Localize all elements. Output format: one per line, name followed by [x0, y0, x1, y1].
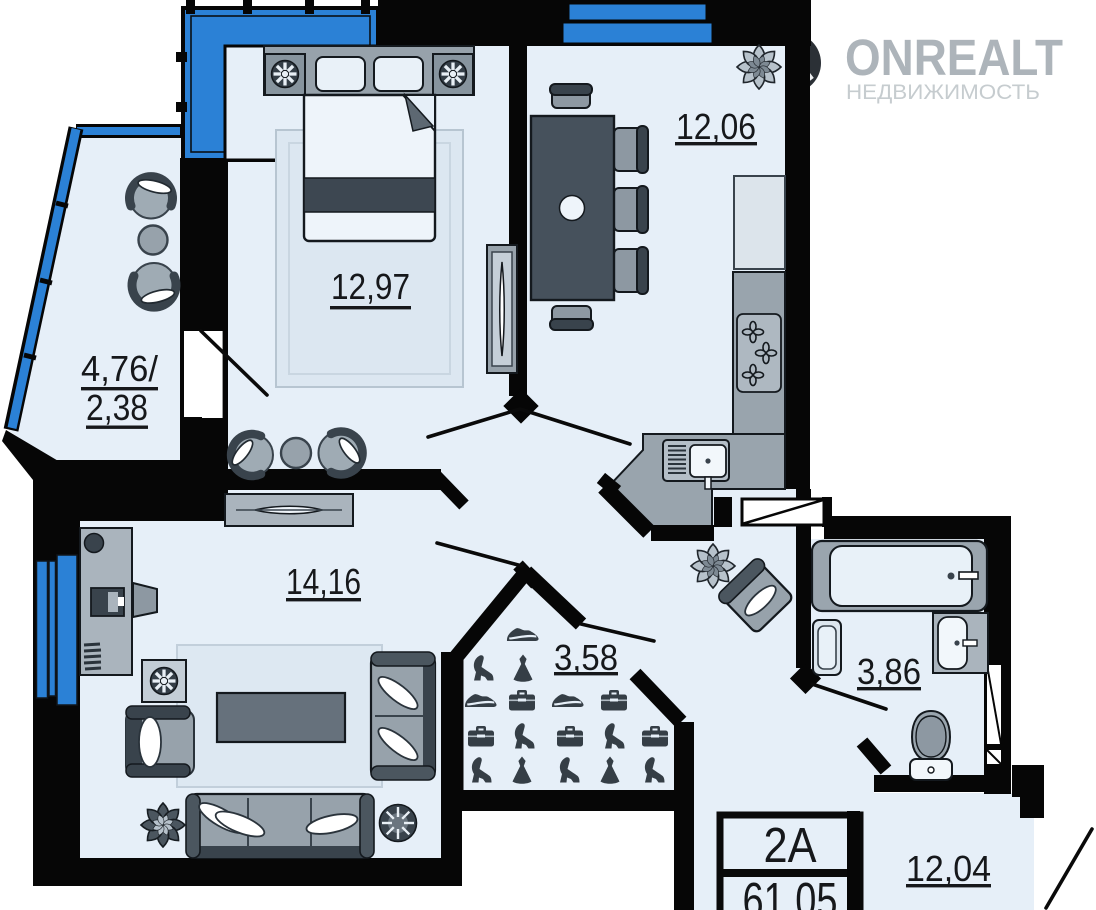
- svg-text:12,06: 12,06: [676, 106, 756, 147]
- svg-text:3,86: 3,86: [857, 651, 921, 692]
- svg-text:4,76/: 4,76/: [81, 348, 158, 389]
- svg-text:61,05: 61,05: [743, 874, 838, 910]
- svg-text:12,04: 12,04: [906, 848, 991, 889]
- svg-text:12,97: 12,97: [331, 266, 410, 307]
- svg-text:14,16: 14,16: [286, 561, 361, 602]
- svg-text:НЕДВИЖИМОСТЬ: НЕДВИЖИМОСТЬ: [846, 81, 1040, 104]
- svg-text:3,58: 3,58: [554, 637, 618, 678]
- svg-text:2A: 2A: [764, 819, 817, 873]
- svg-text:2,38: 2,38: [86, 387, 148, 428]
- svg-text:ONREALT: ONREALT: [845, 29, 1063, 86]
